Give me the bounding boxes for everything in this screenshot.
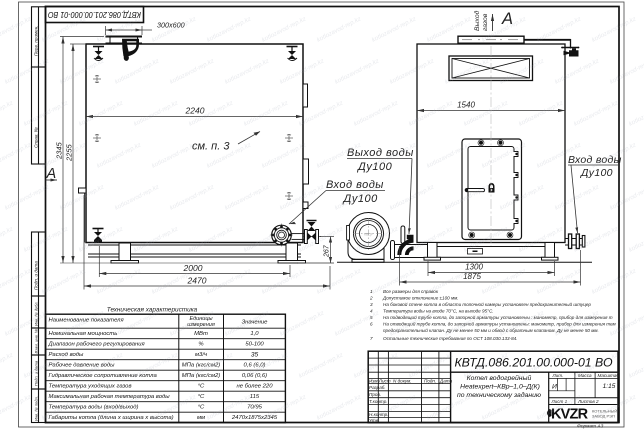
svg-text:Подп.: Подп. <box>424 378 436 383</box>
svg-text:Подп. и дата: Подп. и дата <box>33 261 38 290</box>
svg-text:Изм: Изм <box>369 378 378 383</box>
svg-text:Диапазон рабочего регулировани: Диапазон рабочего регулирования <box>48 342 146 348</box>
svg-text:35: 35 <box>251 352 259 359</box>
svg-text:Формат А3: Формат А3 <box>577 424 604 430</box>
svg-text:Температура воды на входе 70°С: Температура воды на входе 70°С, на выход… <box>383 309 494 314</box>
svg-text:Допустимое отклонение ±100 мм: Допустимое отклонение ±100 мм. <box>382 296 459 301</box>
svg-text:И: И <box>552 384 557 391</box>
svg-text:Температура уходящих газов: Температура уходящих газов <box>49 384 132 390</box>
svg-text:Т.контр.: Т.контр. <box>369 399 388 404</box>
svg-text:Выход: Выход <box>473 10 481 31</box>
svg-text:На боковой стене котла в облас: На боковой стене котла в области топочно… <box>383 301 591 307</box>
svg-text:%: % <box>198 342 203 348</box>
svg-text:Ду100: Ду100 <box>580 167 613 179</box>
svg-text:Лист: Лист <box>378 378 391 383</box>
svg-text:6: 6 <box>370 322 373 327</box>
svg-text:1,0: 1,0 <box>250 331 259 337</box>
svg-text:267: 267 <box>324 244 331 258</box>
svg-text:МВт: МВт <box>194 331 208 337</box>
svg-text:Heatexpert–КВр–1,0–Д(К): Heatexpert–КВр–1,0–Д(К) <box>460 384 540 391</box>
svg-text:Остальные технические требован: Остальные технические требования по ОСТ … <box>383 336 518 341</box>
svg-text:газов: газов <box>482 13 489 31</box>
svg-text:см. п. 3: см. п. 3 <box>192 141 230 153</box>
svg-text:°С: °С <box>198 394 205 400</box>
svg-text:50-100: 50-100 <box>245 342 264 348</box>
svg-text:3: 3 <box>370 302 373 307</box>
svg-text:Перв. примен.: Перв. примен. <box>33 25 38 56</box>
svg-text:КВЦР: КВЦР <box>364 233 374 237</box>
svg-text:2: 2 <box>369 296 373 301</box>
svg-text:Пров.: Пров. <box>369 392 381 397</box>
svg-text:1540: 1540 <box>457 101 475 110</box>
svg-text:Разраб.: Разраб. <box>369 385 386 390</box>
svg-text:Справ. №: Справ. № <box>33 127 38 148</box>
svg-text:Дата: Дата <box>439 378 453 383</box>
svg-text:7: 7 <box>370 336 373 341</box>
svg-text:°С: °С <box>198 405 205 411</box>
svg-text:Масштаб: Масштаб <box>598 373 620 378</box>
svg-text:°С: °С <box>198 384 205 390</box>
svg-text:КВТД.086.201.00.000-01 ВО: КВТД.086.201.00.000-01 ВО <box>48 10 141 20</box>
svg-text:70/95: 70/95 <box>247 405 262 411</box>
svg-text:N докум.: N докум. <box>393 378 412 383</box>
svg-text:м3/ч: м3/ч <box>195 352 207 358</box>
svg-text:1:15: 1:15 <box>603 383 616 390</box>
svg-text:Взам. инв. №: Взам. инв. № <box>33 328 38 353</box>
svg-text:Инв. № подл.: Инв. № подл. <box>33 396 38 421</box>
svg-text:Максимальная рабочая температу: Максимальная рабочая температура воды <box>49 394 171 400</box>
svg-text:Лит.: Лит. <box>552 373 564 378</box>
svg-text:мм: мм <box>197 415 205 421</box>
svg-text:не более 220: не более 220 <box>237 384 274 390</box>
